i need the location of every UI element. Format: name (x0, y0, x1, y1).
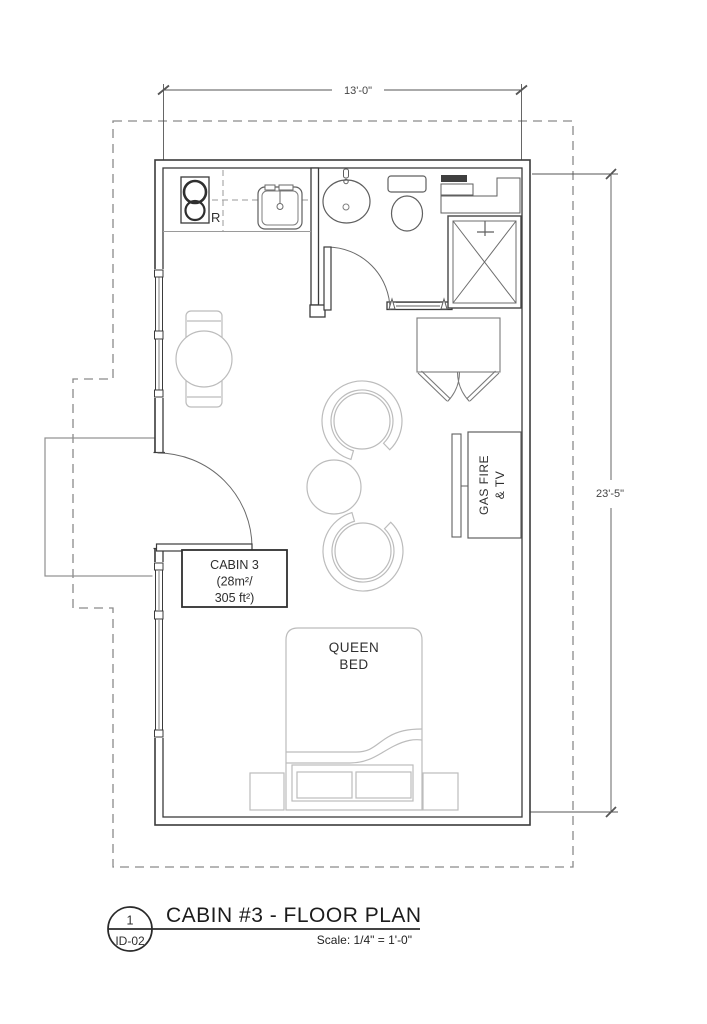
wall-niche (441, 175, 467, 182)
toilet (388, 176, 426, 231)
toilet-bowl (392, 196, 423, 231)
room-label-line3: 305 ft²) (215, 591, 255, 605)
room-label: CABIN 3 (28m²/ 305 ft²) (182, 550, 287, 607)
entry-porch (45, 438, 155, 576)
bathroom-partition-foot (310, 305, 325, 317)
room-label-line2: (28m²/ (216, 575, 253, 589)
room-label-line1: CABIN 3 (210, 558, 259, 572)
queen-bed (286, 628, 422, 810)
gas-fire-label-line1: GAS FIRE (477, 455, 491, 515)
toilet-tank (388, 176, 426, 192)
dining-table (176, 331, 232, 387)
shower (448, 216, 521, 308)
faucet-handle (265, 185, 275, 190)
wall-opening (153, 452, 166, 549)
refrigerator-label: R (211, 210, 220, 225)
faucet-icon (344, 169, 349, 178)
plan-title: CABIN #3 - FLOOR PLAN (166, 904, 422, 927)
nightstand-left (250, 773, 284, 810)
title-block: 1 ID-02 CABIN #3 - FLOOR PLAN Scale: 1/4… (108, 904, 422, 951)
nightstand-right (423, 773, 458, 810)
sheet-ref: ID-02 (115, 934, 145, 948)
wardrobe-body (417, 318, 500, 372)
window-mullion (155, 611, 164, 619)
gas-fire-label-line2: & TV (493, 471, 507, 499)
bed-label-line2: BED (339, 657, 368, 672)
detail-number: 1 (127, 914, 134, 928)
window-mullion (155, 730, 164, 737)
window-mullion (155, 563, 164, 570)
faucet-handle (279, 185, 293, 190)
bathroom-partition-wall (311, 168, 319, 305)
window-mullion (155, 331, 164, 339)
dim-height-label: 23'-5" (596, 488, 624, 500)
tv (452, 434, 461, 537)
bed-label-line1: QUEEN (329, 640, 380, 655)
drawing-sheet: 13'-0" 23'-5" (0, 0, 707, 1024)
dim-width-label: 13'-0" (344, 85, 372, 97)
floor-plan-svg: 13'-0" 23'-5" (0, 0, 707, 1024)
bathroom-door-leaf (324, 247, 331, 310)
kitchen-sink (258, 185, 302, 229)
window-mullion (155, 390, 164, 397)
window-mullion (155, 270, 164, 277)
side-table (307, 460, 361, 514)
plan-scale: Scale: 1/4" = 1'-0" (317, 933, 412, 947)
